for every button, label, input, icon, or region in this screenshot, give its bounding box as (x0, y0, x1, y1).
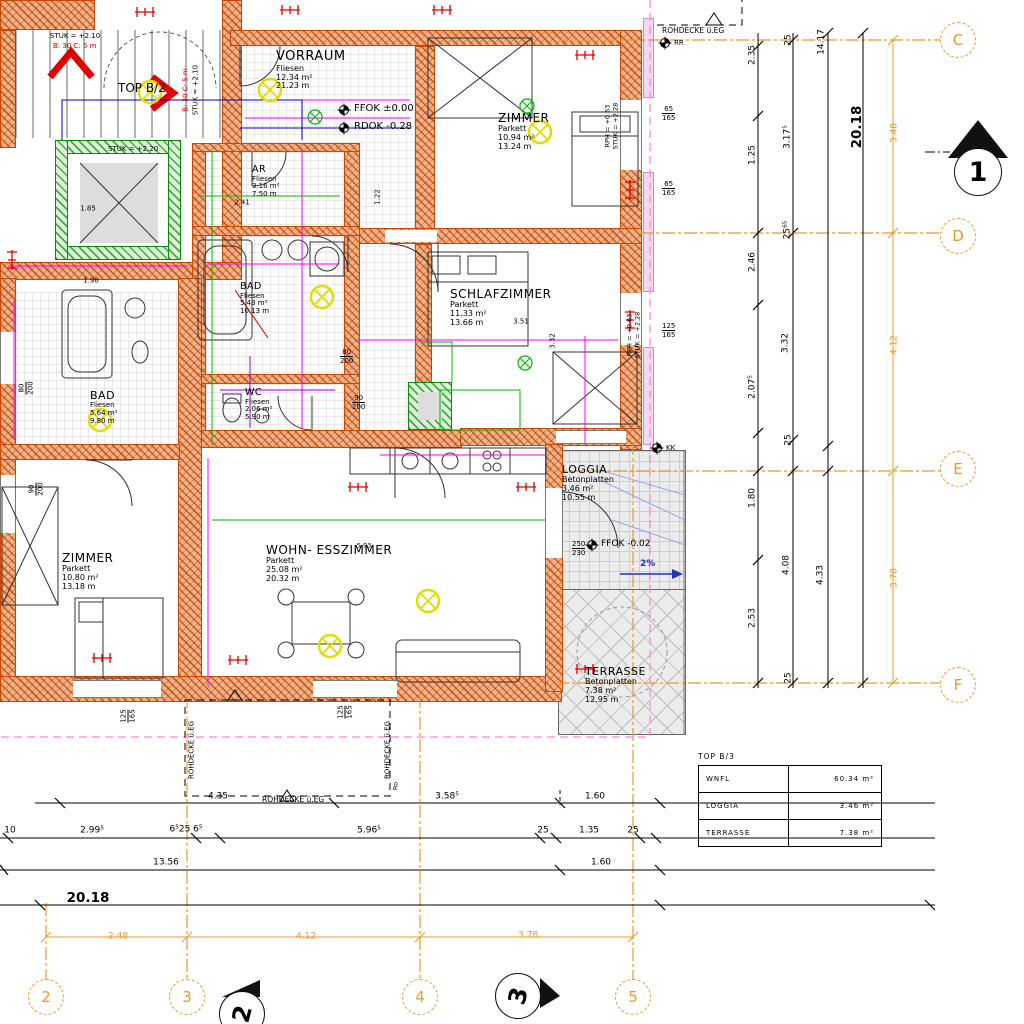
dim: 10 (4, 826, 15, 835)
dim-total: 20.18 (850, 106, 864, 149)
rohdecke-label-rot: ROHDECKE ü.EG (188, 721, 195, 779)
dim: 1.85 (80, 205, 96, 212)
dim: 3.32 (549, 333, 556, 349)
window-tag: 80200 (18, 381, 35, 394)
dim: 2.07⁵ (748, 375, 757, 399)
axis-dim: 3.78 (890, 568, 899, 588)
room-label-ar: AR Fliesen 3.16 m² 7.50 m (252, 165, 279, 199)
dim: 3.32 (781, 333, 790, 353)
dim: 1.25 (748, 145, 757, 165)
room-label-wc: WC Fliesen 2.06 m² 5.90 m (245, 388, 272, 422)
table-value: 60.34 m² (789, 766, 882, 793)
purple-lines (220, 356, 335, 428)
door-tag: 90200 (352, 394, 365, 411)
marker-ro: Ro (393, 782, 400, 790)
grid-bubble-2: 2 (28, 979, 64, 1015)
table-value: 7.38 m² (789, 820, 882, 847)
dim: 25⁶⁵ (783, 221, 792, 240)
dim: 4.35 (208, 792, 228, 801)
rph-note: RPH = +0.63 (605, 105, 612, 148)
room-label-zimmer-left: ZIMMER Parkett 10.80 m² 13.18 m (62, 552, 113, 592)
stuk-note: STUK = +2.28 (613, 103, 620, 150)
grid-bubble-F: F (940, 667, 976, 703)
dim: 4.08 (782, 555, 791, 575)
room-label-zimmer-top: ZIMMER Parkett 10.94 m² 13.24 m (498, 112, 549, 152)
level-rdok: RDOK -0.28 (354, 122, 412, 133)
stair-b-label-rot: B: 30 C: 5 m (182, 68, 189, 112)
table-key: LOGGIA (699, 793, 789, 820)
axis-dim: 4.12 (296, 932, 316, 941)
axis-dim: 2.48 (108, 932, 128, 941)
floor-plan-canvas: VORRAUM Fliesen 12.34 m² 21.23 m ZIMMER … (0, 0, 1024, 1024)
dim: 1.60 (591, 858, 611, 867)
level-ffok-loggia: FFOK -0.02 (601, 540, 651, 549)
dim: 25 (537, 826, 548, 835)
room-label-loggia: LOGGIA Betonplatten 3.46 m² 10.55 m (562, 464, 614, 503)
rph-note: RPH = +0.63 (627, 314, 634, 357)
window-tag: 125165 (662, 322, 675, 339)
rohdecke-outlines (185, 0, 950, 805)
section-marker-1: 1 (954, 148, 1002, 196)
dim: 3.51 (513, 318, 529, 325)
window-tag: 125165 (120, 709, 137, 722)
door-tag: 80200 (340, 348, 353, 365)
stuk-label-rot: STUK = +2.10 (192, 65, 199, 115)
window-tag: 65165 (662, 180, 675, 197)
dim-total: 20.18 (67, 891, 110, 905)
dim: 2.53 (748, 608, 757, 628)
grid-bubble-C: C (940, 22, 976, 58)
window-tag: 90200 (28, 482, 45, 495)
room-label-schlafzimmer: SCHLAFZIMMER Parkett 11.33 m² 13.66 m (450, 288, 551, 328)
table-key: WNFL (699, 766, 789, 793)
dim: 5.93 (357, 543, 371, 550)
grid-bubble-E: E (940, 451, 976, 487)
dim: 4.33 (816, 565, 825, 585)
dim: 2.46 (748, 252, 757, 272)
dim: 2.99⁵ (80, 826, 104, 835)
stair-b-label: B: 30 C: 5 m (53, 43, 97, 50)
marker-rr: RR (674, 40, 684, 47)
room-label-bad-mid: BAD Fliesen 5.43 m² 10.13 m (240, 282, 269, 316)
area-table: TOP B/3 WNFL 60.34 m² LOGGIA 3.46 m² TER… (698, 752, 882, 847)
table-row: TERRASSE 7.38 m² (699, 820, 882, 847)
window-tag: 65165 (662, 105, 675, 122)
stuk-label: STUK = +2.20 (108, 146, 158, 153)
dim: 25 (784, 34, 793, 45)
table-row: WNFL 60.34 m² (699, 766, 882, 793)
dim: 13.56 (153, 858, 179, 867)
dim: 25 (784, 434, 793, 445)
dim: 1.22 (374, 189, 381, 205)
grid-bubble-5: 5 (615, 979, 651, 1015)
axis-dim: 3.78 (518, 931, 538, 940)
slope-label: 2% (640, 560, 655, 569)
area-table-title: TOP B/3 (698, 752, 882, 761)
dim: 6⁵25 6⁵ (170, 825, 203, 834)
section-marker-3: 3 (495, 973, 541, 1019)
axis-dim: 4.12 (890, 335, 899, 355)
dim: 1.60 (585, 792, 605, 801)
room-label-vorraum: VORRAUM Fliesen 12.34 m² 21.23 m (276, 50, 346, 91)
room-label-terrasse: TERRASSE Betonplatten 7.38 m² 12.95 m (585, 666, 646, 705)
dim: 3.58⁵ (435, 792, 459, 801)
axis-dim: 3.48 (890, 123, 899, 143)
room-label-bad-left: BAD Fliesen 5.64 m² 9.80 m (90, 390, 117, 426)
stuk-label: STUK = +2.10 (50, 33, 100, 40)
level-ffok: FFOK ±0.00 (354, 104, 414, 115)
slope-arrow (620, 569, 683, 579)
marker-kk: KK (666, 445, 675, 452)
stuk-note: STUK = +2.28 (635, 312, 642, 359)
stair-top-label: TOP B/2 (118, 82, 166, 95)
dim: 14.17 (817, 29, 826, 55)
dim: 1.98 (83, 277, 99, 284)
rohdecke-label-bottom: ROHDECKE ü.EG (262, 796, 324, 804)
dim: 1.80 (748, 488, 757, 508)
grid-bubble-4: 4 (402, 979, 438, 1015)
table-key: TERRASSE (699, 820, 789, 847)
dim: 25 (627, 826, 638, 835)
table-row: LOGGIA 3.46 m² (699, 793, 882, 820)
rohdecke-label-rot: ROHDECKE ü.EG (384, 721, 391, 779)
room-label-wohnzimmer: WOHN- ESSZIMMER Parkett 25.08 m² 20.32 m (266, 544, 392, 584)
window-tag: 125165 (337, 705, 354, 718)
dim: 1.35 (579, 826, 599, 835)
dim: 25 (784, 672, 793, 683)
cad-overlay (0, 0, 1024, 1024)
dim: 2.35 (748, 45, 757, 65)
dim: 3.17⁵ (783, 125, 792, 149)
dim: 5.96⁵ (357, 826, 381, 835)
grid-bubble-3: 3 (169, 979, 205, 1015)
loggia-door-size: 250 230 (572, 540, 585, 557)
grid-bubble-D: D (940, 218, 976, 254)
table-value: 3.46 m² (789, 793, 882, 820)
rohdecke-label-top: ROHDECKE ü.EG (662, 27, 724, 35)
dim: 2.41 (234, 199, 250, 206)
